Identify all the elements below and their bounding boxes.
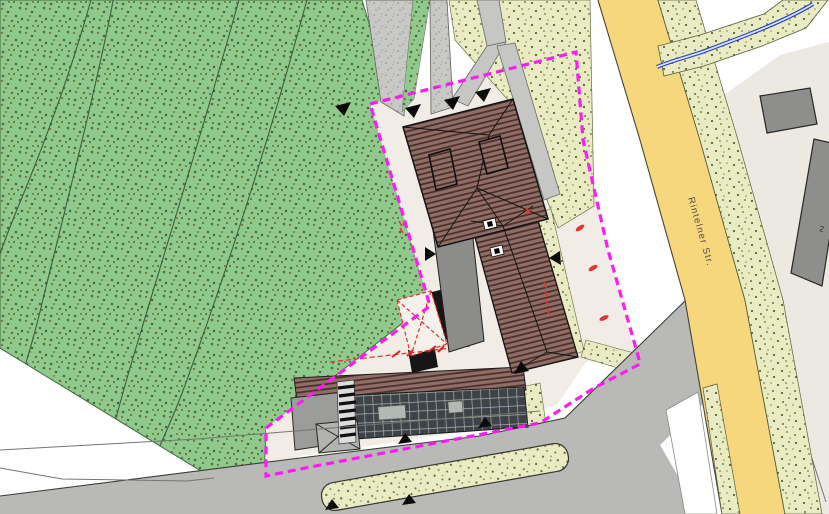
panel-grid-opening bbox=[448, 401, 463, 413]
panel-grid-opening bbox=[378, 405, 406, 420]
stair-symbol bbox=[337, 380, 356, 444]
footpath-narrow bbox=[430, 0, 453, 114]
site-plan-canvas: 2 bbox=[0, 0, 829, 514]
site-plan-map: 2 bbox=[0, 0, 829, 514]
